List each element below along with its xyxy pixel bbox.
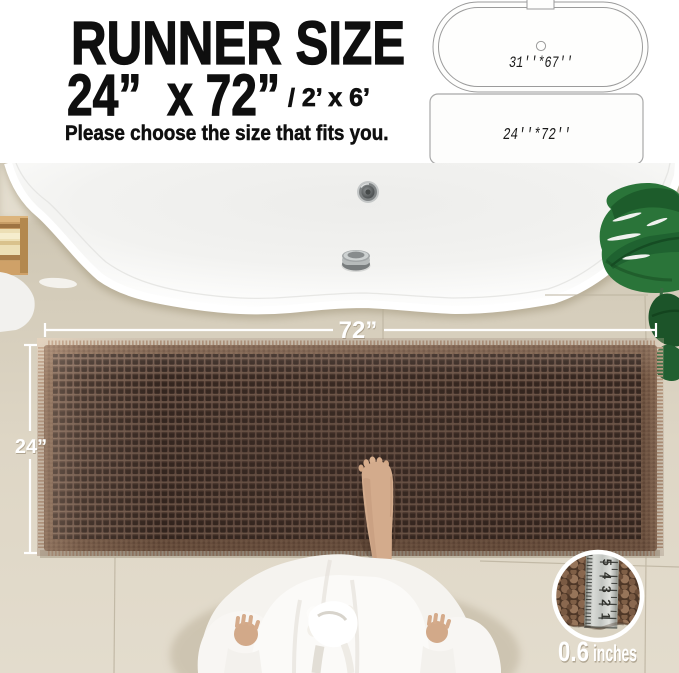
svg-text:2: 2 <box>599 599 613 606</box>
svg-text:0.6: 0.6 <box>558 636 589 667</box>
svg-text:24”: 24” <box>15 436 47 458</box>
svg-text:1: 1 <box>598 613 612 620</box>
svg-text:4: 4 <box>599 572 613 579</box>
svg-text:3: 3 <box>599 586 613 593</box>
svg-text:31''*67'': 31''*67'' <box>509 54 573 72</box>
svg-text:inches: inches <box>593 640 637 666</box>
svg-text:5: 5 <box>600 559 614 566</box>
svg-text:24''*72'': 24''*72'' <box>503 125 571 144</box>
